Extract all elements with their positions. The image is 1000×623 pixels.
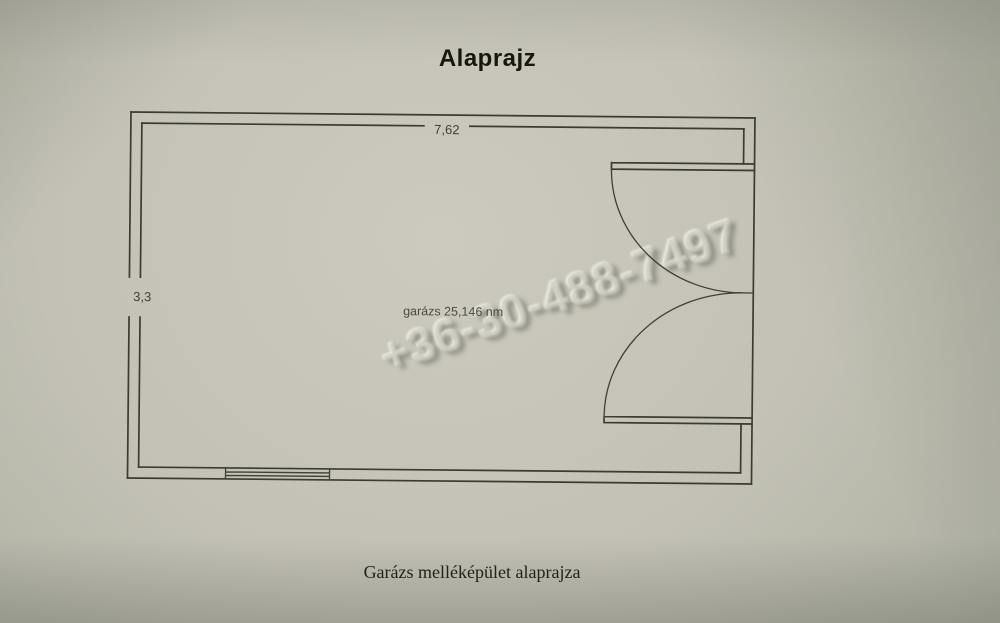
outer-wall-top [131, 112, 755, 118]
outer-wall-bottom [127, 478, 751, 484]
door-swing-arc-top [610, 169, 743, 293]
floor-plan-drawing: 7,62 3,3 garázs 25,146 nm [0, 0, 1000, 623]
inner-wall-right [741, 129, 744, 473]
room-area-label: garázs 25,146 nm [403, 304, 503, 319]
door-leaf-bottom [604, 417, 752, 424]
floor-plan-photo: Alaprajz +36-30-488-7497 7,62 3,3 gar [0, 0, 1000, 623]
door-swing-arc-bottom [604, 292, 742, 418]
outer-wall-right [751, 118, 755, 484]
window-symbol [225, 468, 329, 480]
door-leaf-top [611, 163, 754, 171]
width-dimension-label: 7,62 [434, 122, 459, 137]
outer-wall-left [127, 112, 131, 478]
height-dimension-label: 3,3 [133, 289, 151, 304]
